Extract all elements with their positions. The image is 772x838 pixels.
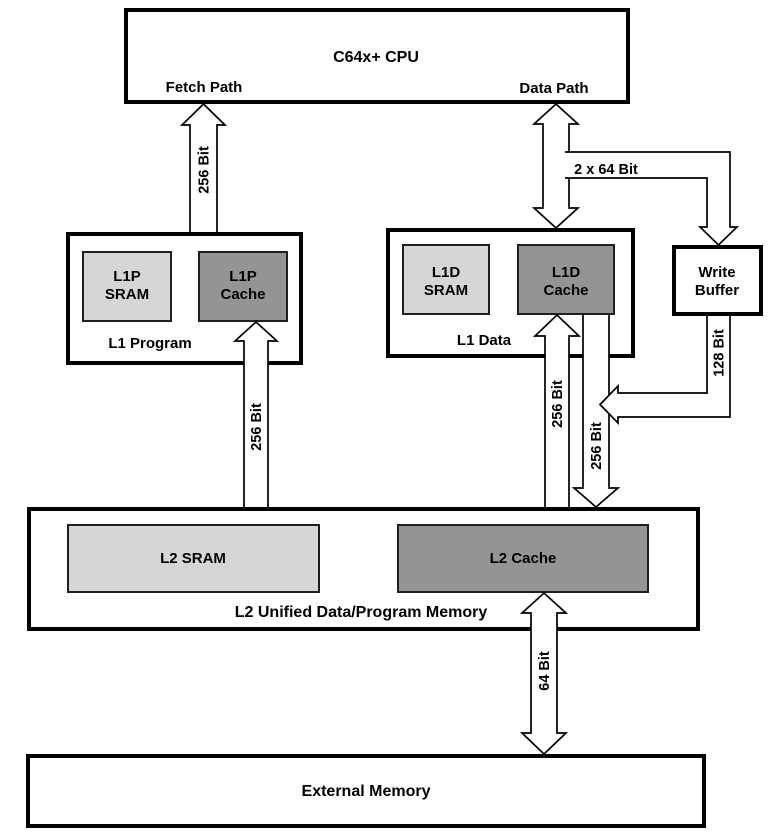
l1p-cache-label-line2: Cache	[220, 286, 265, 303]
cpu-data-bus-label: 2 x 64 Bit	[574, 162, 638, 178]
fetch-bus-label: 256 Bit	[197, 146, 213, 194]
l1-data-label: L1 Data	[457, 332, 512, 349]
l2-label: L2 Unified Data/Program Memory	[235, 604, 488, 621]
l2-sram-label: L2 SRAM	[160, 550, 226, 567]
l1d-sram-label-line1: L1D	[432, 264, 461, 281]
l2-cache-label: L2 Cache	[490, 550, 557, 567]
l1p-sram-label-line2: SRAM	[105, 286, 149, 303]
l1p-cache-label-line1: L1P	[229, 268, 257, 285]
write-buffer-bus-label: 128 Bit	[712, 329, 728, 377]
write-buffer-label-line2: Buffer	[695, 282, 739, 299]
l1d-cache-label-line1: L1D	[552, 264, 581, 281]
l2-l1d-bus-label: 256 Bit	[550, 380, 566, 428]
cpu-title: C64x+ CPU	[333, 49, 419, 66]
l2-l1p-bus-label: 256 Bit	[249, 403, 265, 451]
l1d-sram-label-line2: SRAM	[424, 282, 468, 299]
data-path-label: Data Path	[519, 80, 588, 97]
fetch-path-label: Fetch Path	[166, 79, 243, 96]
external-bus-label: 64 Bit	[537, 651, 553, 691]
l1-program-label: L1 Program	[108, 335, 191, 352]
write-buffer-label-line1: Write	[698, 264, 735, 281]
external-memory-label: External Memory	[302, 783, 431, 800]
l1d-l2-bus-label: 256 Bit	[589, 422, 605, 470]
l1p-sram-label-line1: L1P	[113, 268, 141, 285]
diagram-canvas: C64x+ CPU Fetch Path Data Path L1P SRAM …	[0, 0, 772, 838]
memory-architecture-diagram: C64x+ CPU Fetch Path Data Path L1P SRAM …	[0, 0, 772, 838]
l1d-cache-label-line2: Cache	[543, 282, 588, 299]
